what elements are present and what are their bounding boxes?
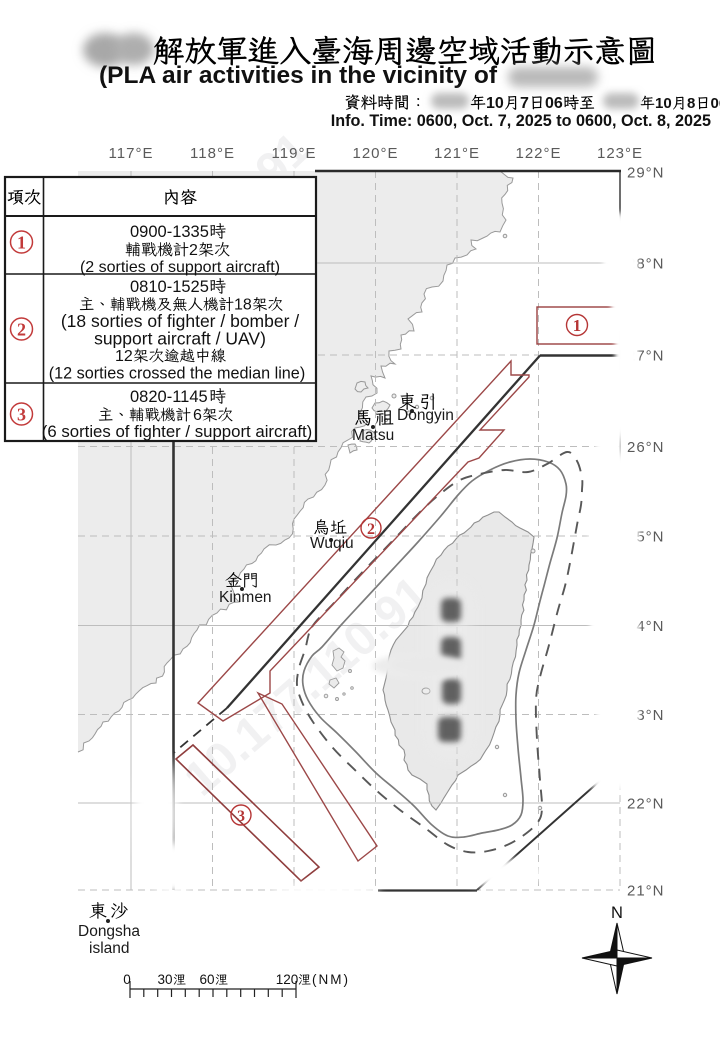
svg-text:118°E: 118°E xyxy=(190,145,235,162)
svg-text:06: 06 xyxy=(545,95,563,112)
svg-text:Wuqiu: Wuqiu xyxy=(310,535,354,552)
svg-text:119°E: 119°E xyxy=(272,145,317,162)
svg-text:26°N: 26°N xyxy=(627,439,665,456)
svg-text:120°E: 120°E xyxy=(352,145,398,162)
svg-text:117°E: 117°E xyxy=(109,145,154,162)
svg-text:Matsu: Matsu xyxy=(352,427,394,444)
svg-text:123°E: 123°E xyxy=(597,145,643,162)
svg-text:2: 2 xyxy=(17,319,26,339)
svg-text:8: 8 xyxy=(687,95,695,112)
svg-text:Dongsha: Dongsha xyxy=(78,923,140,940)
svg-text:29°N: 29°N xyxy=(627,165,665,182)
svg-text:121°E: 121°E xyxy=(434,145,480,162)
svg-text:2: 2 xyxy=(189,242,198,259)
svg-text:60: 60 xyxy=(199,972,214,987)
svg-text:Dongyin: Dongyin xyxy=(397,407,454,424)
svg-text:0820-1145: 0820-1145 xyxy=(130,388,208,406)
svg-text:island: island xyxy=(89,940,130,957)
svg-text:22°N: 22°N xyxy=(627,796,665,813)
svg-text:(12 sorties crossed the median: (12 sorties crossed the median line) xyxy=(49,365,305,383)
svg-text:10: 10 xyxy=(655,95,672,112)
svg-text:122°E: 122°E xyxy=(515,145,561,162)
svg-text:0810-1525: 0810-1525 xyxy=(130,278,209,296)
svg-text:N: N xyxy=(611,904,623,922)
svg-text:30: 30 xyxy=(157,972,172,987)
svg-text:(2 sorties of support aircraft: (2 sorties of support aircraft) xyxy=(80,259,280,276)
svg-text:Info. Time: 0600, Oct. 7, 2025: Info. Time: 0600, Oct. 7, 2025 to 0600, … xyxy=(331,112,711,130)
svg-text:12: 12 xyxy=(115,348,133,365)
svg-text:support aircraft / UAV): support aircraft / UAV) xyxy=(94,329,266,349)
svg-text:(6 sorties of fighter / suppor: (6 sorties of fighter / support aircraft… xyxy=(42,422,312,441)
svg-text:10: 10 xyxy=(486,95,504,112)
svg-text:2: 2 xyxy=(367,521,375,538)
svg-text:1: 1 xyxy=(17,232,26,252)
svg-text:(PLA air activities in the vic: (PLA air activities in the vicinity of xyxy=(99,62,498,89)
svg-text:3: 3 xyxy=(17,404,26,424)
svg-text:Kinmen: Kinmen xyxy=(219,589,272,606)
svg-text:0900-1335: 0900-1335 xyxy=(130,223,209,241)
svg-text:06: 06 xyxy=(711,95,720,112)
svg-text:120: 120 xyxy=(276,972,299,987)
svg-text:(NM): (NM) xyxy=(312,972,350,987)
svg-text:1: 1 xyxy=(573,316,582,335)
svg-text:21°N: 21°N xyxy=(627,883,665,900)
svg-text:0: 0 xyxy=(123,972,131,987)
svg-text:7: 7 xyxy=(520,95,529,112)
svg-text:3: 3 xyxy=(237,808,245,825)
